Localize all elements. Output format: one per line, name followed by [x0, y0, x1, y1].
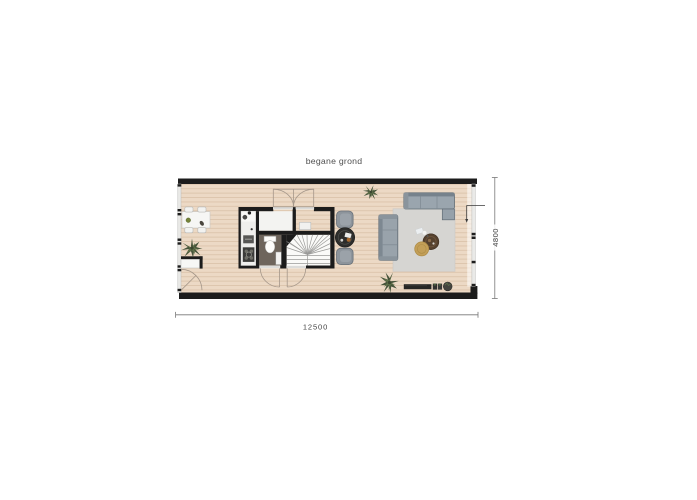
svg-text:begane grond: begane grond [306, 156, 363, 166]
svg-text:12500: 12500 [303, 323, 328, 332]
svg-text:4800: 4800 [491, 228, 500, 247]
